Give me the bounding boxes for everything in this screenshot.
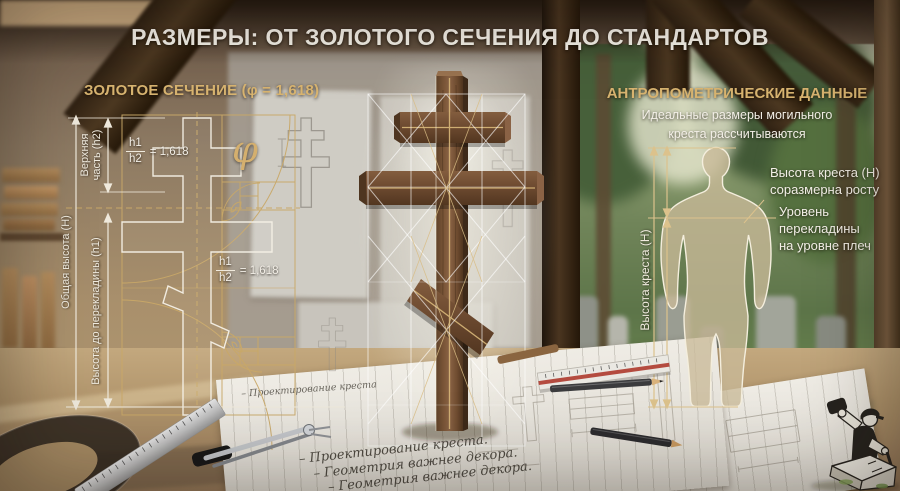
note-line: Уровень [779,203,871,220]
note-line: соразмерна росту [770,181,880,198]
phi-symbol: φ [232,128,258,171]
note-line: перекладины [779,220,871,237]
wooden-stick [497,344,559,365]
golden-ratio-formula: h1 h2 = 1,618 [216,256,279,285]
pencil [590,427,683,449]
stonemason-emblem-icon [811,398,899,491]
anthropometric-subtitle: Идеальные размеры могильного креста расс… [592,106,882,144]
note-cross-height: Высота креста (Н) соразмерна росту [770,164,880,198]
numerator: h1 [216,256,235,271]
equals-value: = 1,618 [150,146,189,158]
note-line: на уровне плеч [779,237,871,254]
bar-shadow [366,205,537,209]
equals-value: = 1,618 [240,265,279,277]
subtitle-line: Идеальные размеры могильного [592,106,882,125]
denominator: h2 [216,271,235,285]
note-line: Высота креста (Н) [770,164,880,181]
fraction: h1 h2 [126,137,145,166]
label-line: Верхняя [79,130,91,181]
note-crossbar-level: Уровень перекладины на уровне плеч [779,203,871,254]
golden-ratio-formula: h1 h2 = 1,618 [126,137,189,166]
infographic-poster: – Проектирование креста [0,0,900,491]
label-total-height: Общая высота (Н) [60,215,72,309]
beam-top-cap [436,71,463,76]
numerator: h1 [126,137,145,152]
label-cross-height: Высота креста (Н) [638,229,652,330]
label-line: часть (h2) [91,130,103,181]
wooden-cross [359,71,544,431]
bar-bevel [537,171,544,205]
fraction: h1 h2 [216,256,235,285]
bar-bevel [359,171,366,205]
bar-bevel [394,112,400,143]
golden-section-header: ЗОЛОТОЕ СЕЧЕНИЕ (φ = 1,618) [84,82,319,99]
denominator: h2 [126,152,145,166]
label-top-part: Верхняя часть (h2) [79,130,103,181]
vector-overlay [0,0,900,491]
human-silhouette [661,148,771,407]
subtitle-line: креста рассчитываются [592,125,882,144]
page-title: РАЗМЕРЫ: ОТ ЗОЛОТОГО СЕЧЕНИЯ ДО СТАНДАРТ… [0,24,900,51]
anthropometric-header: АНТРОПОМЕТРИЧЕСКИЕ ДАННЫЕ [582,85,892,102]
golden-section-diagram [66,112,345,450]
label-to-crossbar: Высота до перекладины (h1) [90,237,102,384]
